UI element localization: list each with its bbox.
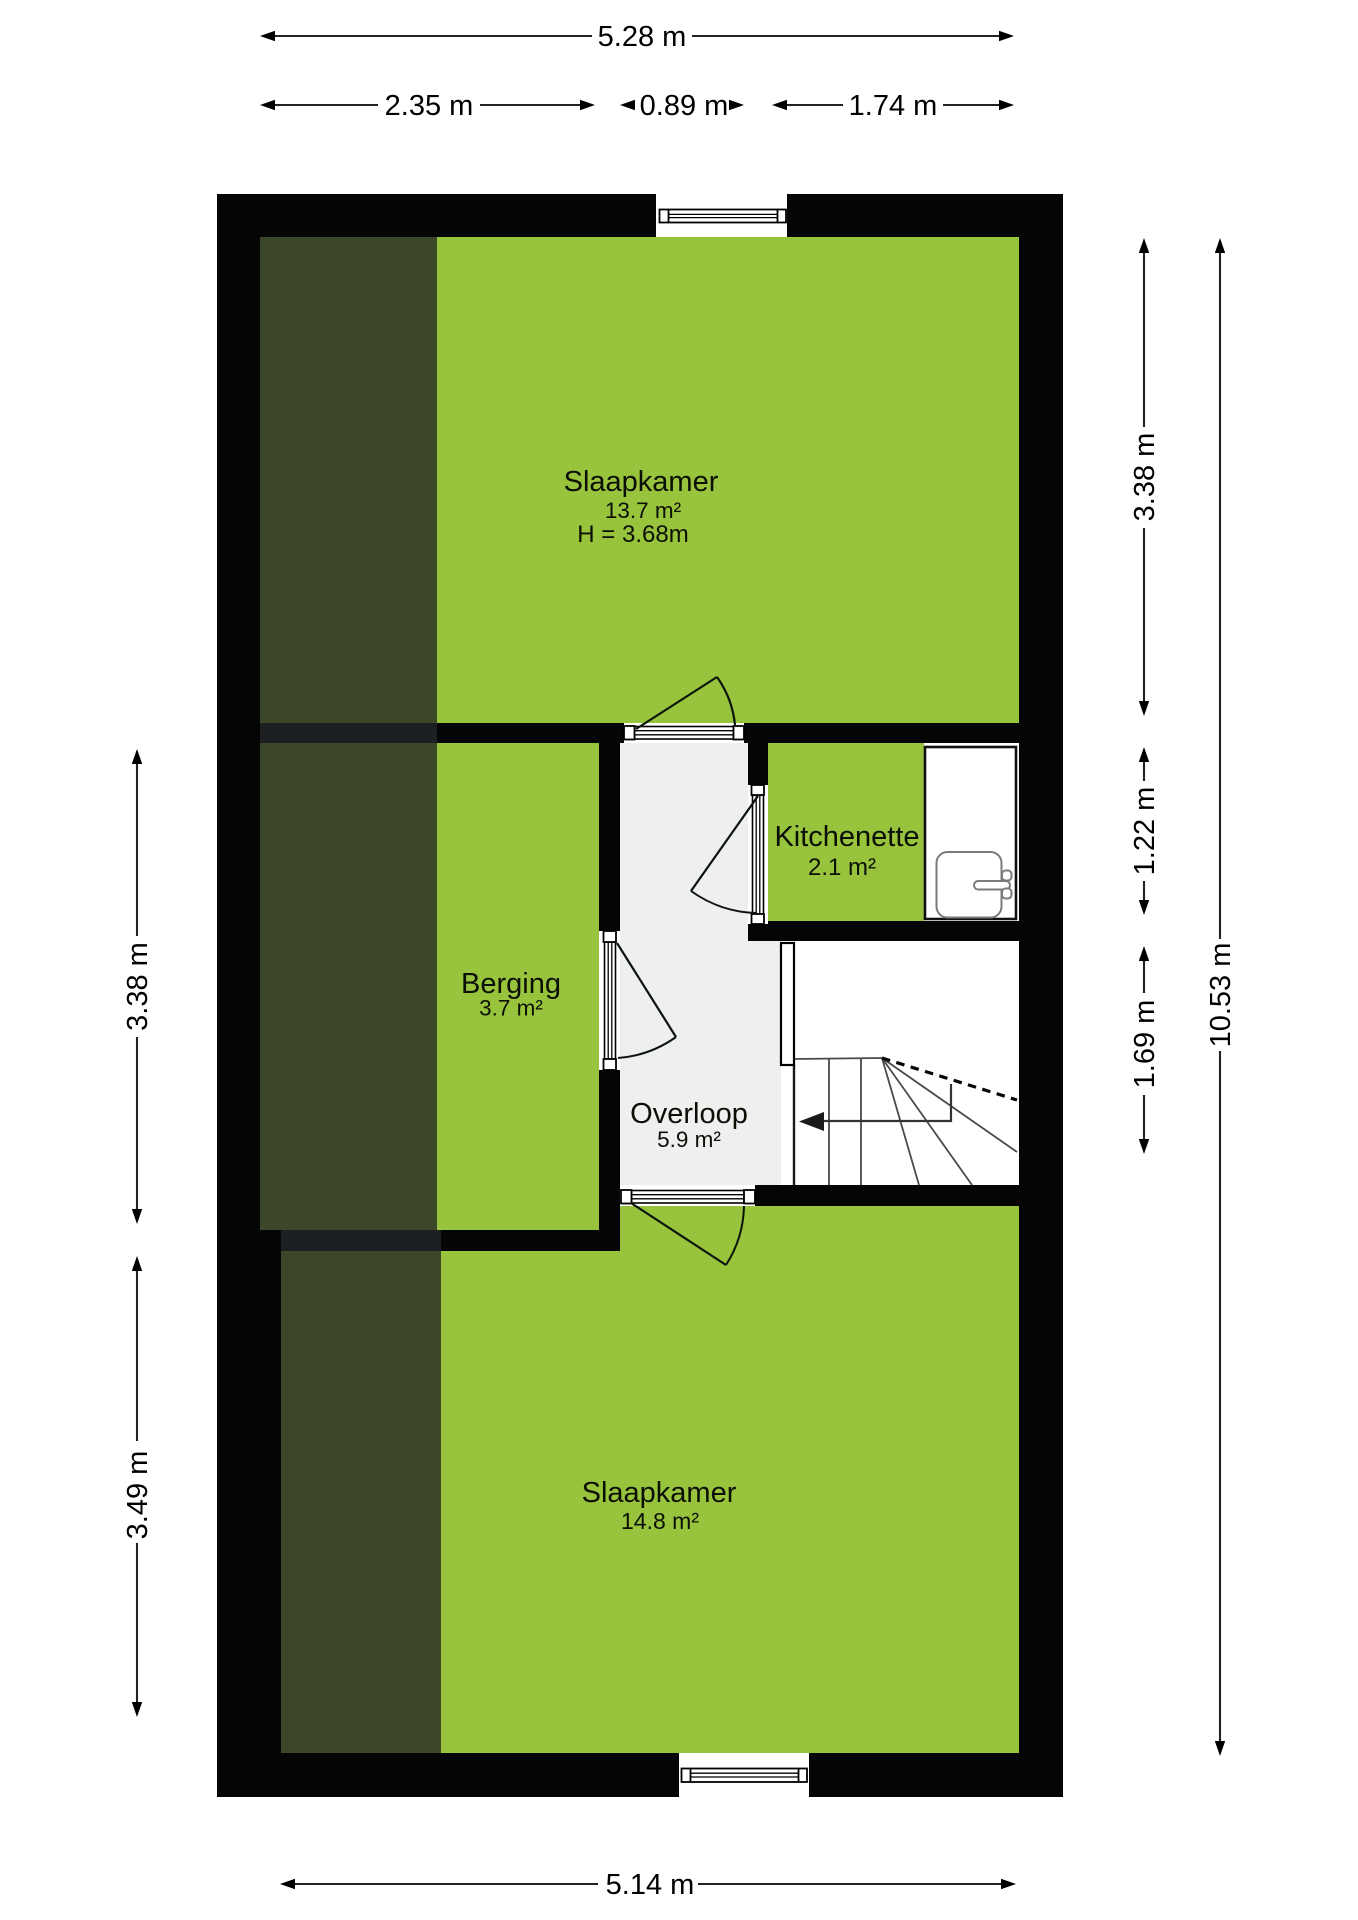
svg-text:1.69 m: 1.69 m <box>1129 1000 1161 1089</box>
svg-text:0.89 m: 0.89 m <box>640 90 729 122</box>
svg-text:5.9 m²: 5.9 m² <box>657 1127 721 1152</box>
svg-text:14.8 m²: 14.8 m² <box>621 1508 699 1534</box>
svg-text:13.7 m²: 13.7 m² <box>605 498 682 523</box>
svg-text:2.1 m²: 2.1 m² <box>808 854 876 881</box>
svg-text:Overloop: Overloop <box>630 1098 748 1130</box>
svg-text:Slaapkamer: Slaapkamer <box>582 1477 737 1509</box>
svg-text:1.74 m: 1.74 m <box>849 90 938 122</box>
svg-text:5.14 m: 5.14 m <box>606 1869 695 1901</box>
svg-text:Slaapkamer: Slaapkamer <box>564 466 719 498</box>
svg-text:1.22 m: 1.22 m <box>1129 787 1161 876</box>
svg-text:3.49 m: 3.49 m <box>122 1451 154 1540</box>
svg-text:2.35 m: 2.35 m <box>385 90 474 122</box>
svg-text:3.7 m²: 3.7 m² <box>479 996 543 1021</box>
svg-text:Kitchenette: Kitchenette <box>774 821 919 853</box>
svg-text:3.38 m: 3.38 m <box>1129 433 1161 522</box>
svg-text:5.28 m: 5.28 m <box>598 21 687 53</box>
svg-text:H = 3.68m: H = 3.68m <box>577 521 688 548</box>
svg-text:3.38 m: 3.38 m <box>122 942 154 1031</box>
svg-text:10.53 m: 10.53 m <box>1205 943 1237 1048</box>
